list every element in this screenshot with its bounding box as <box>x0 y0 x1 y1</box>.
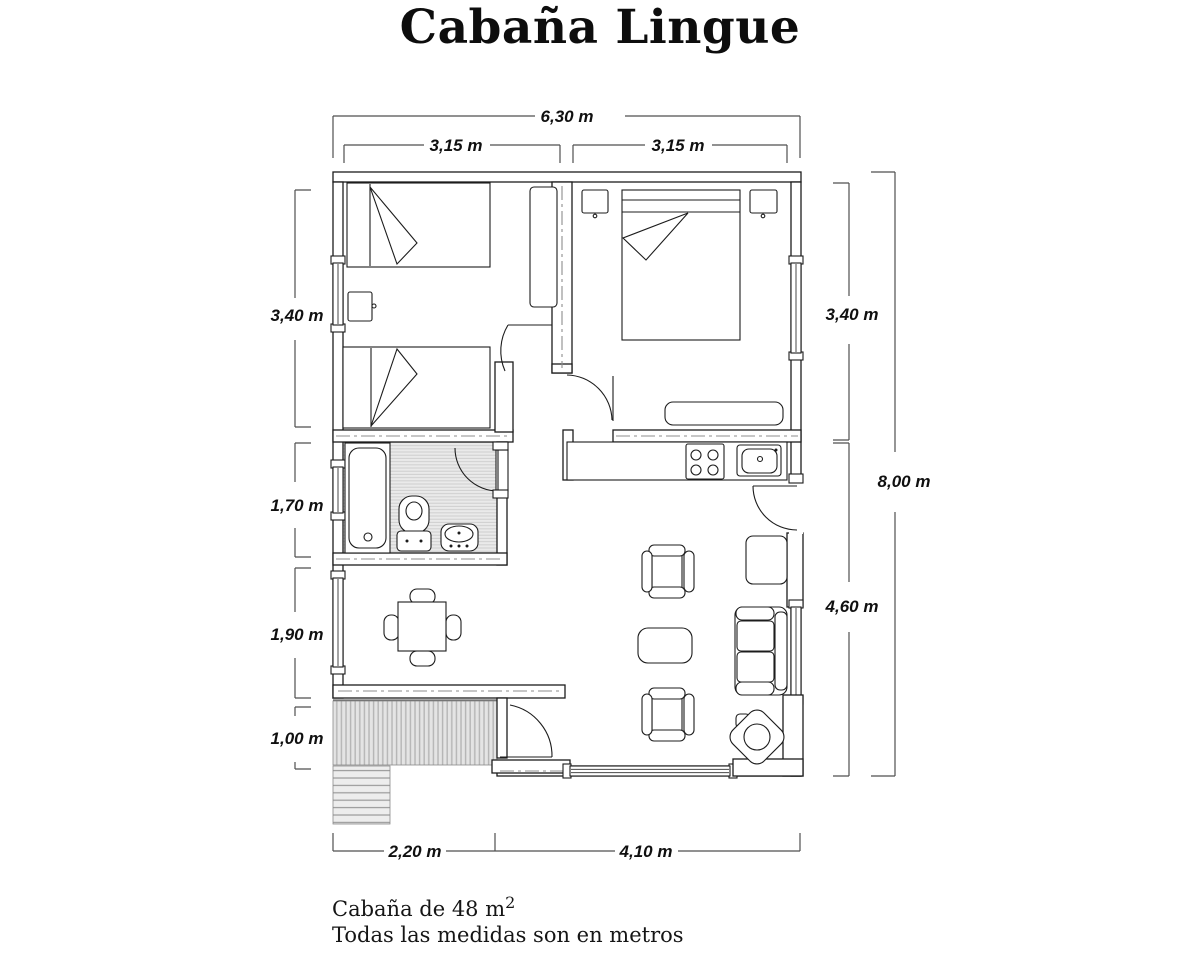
dim-left-porch: 1,00 m <box>271 729 324 748</box>
wall-porch-east <box>497 698 507 758</box>
bed-single-2 <box>343 347 490 428</box>
dim-right-living: 4,60 m <box>825 597 879 616</box>
window-bedroom2-east <box>789 256 803 360</box>
dim-bottom-porch: 2,20 m <box>388 842 442 861</box>
wardrobe <box>530 187 557 307</box>
chair-east <box>446 615 461 640</box>
dim-left-dining: 1,90 m <box>271 625 324 644</box>
wall-north <box>333 172 801 182</box>
sofa <box>735 607 787 695</box>
window-bathroom-west <box>331 460 345 520</box>
door-entrance <box>500 705 552 757</box>
wall-east-jamb <box>787 533 803 607</box>
armchair-1 <box>642 545 694 598</box>
foot-bench <box>665 402 783 425</box>
door-bedroom-2 <box>567 375 613 421</box>
dim-left-bedroom: 3,40 m <box>271 306 324 325</box>
chair-south <box>410 651 435 666</box>
kitchen-sink <box>737 445 781 476</box>
fridge <box>746 536 787 584</box>
dim-right-bedroom: 3,40 m <box>826 305 879 324</box>
dim-top-total: 6,30 m <box>541 107 594 126</box>
entry-steps <box>333 766 390 824</box>
nightstand-left <box>582 190 608 213</box>
dim-right-total: 8,00 m <box>878 472 931 491</box>
note-area: Cabaña de 48 m2 <box>332 896 684 922</box>
dim-bottom-living: 4,10 m <box>619 842 673 861</box>
dining-area <box>384 589 461 666</box>
cooktop <box>686 444 724 479</box>
dim-top-right: 3,15 m <box>652 136 705 155</box>
dim-left-bathroom: 1,70 m <box>271 496 324 515</box>
porch-deck <box>333 700 497 765</box>
coffee-table <box>638 628 692 663</box>
armchair-2 <box>642 688 694 741</box>
wall-hall-stub <box>495 362 513 432</box>
window-bedroom1-west <box>331 256 345 332</box>
bedroom-1 <box>343 183 557 428</box>
floor-plan-svg: 6,30 m 3,15 m 3,15 m 3,40 m 1,70 m 1,90 … <box>0 0 1200 960</box>
window-living-south <box>563 764 737 778</box>
note-area-sup: 2 <box>505 893 515 912</box>
note-units: Todas las medidas son en metros <box>332 922 684 948</box>
chair-west <box>384 615 399 640</box>
door-kitchen-back <box>753 474 803 534</box>
bed-single-1 <box>347 183 490 267</box>
nightstand-right <box>750 190 777 213</box>
window-living-east <box>789 600 803 704</box>
window-dining-west <box>331 571 345 674</box>
bathroom-sink <box>441 524 478 551</box>
bedroom-2 <box>582 190 783 425</box>
dining-table <box>398 602 446 651</box>
toilet <box>397 496 431 551</box>
plan-notes: Cabaña de 48 m2 Todas las medidas son en… <box>332 896 684 948</box>
nightstand <box>348 292 372 321</box>
bathtub <box>345 443 390 553</box>
dim-top-left: 3,15 m <box>430 136 483 155</box>
